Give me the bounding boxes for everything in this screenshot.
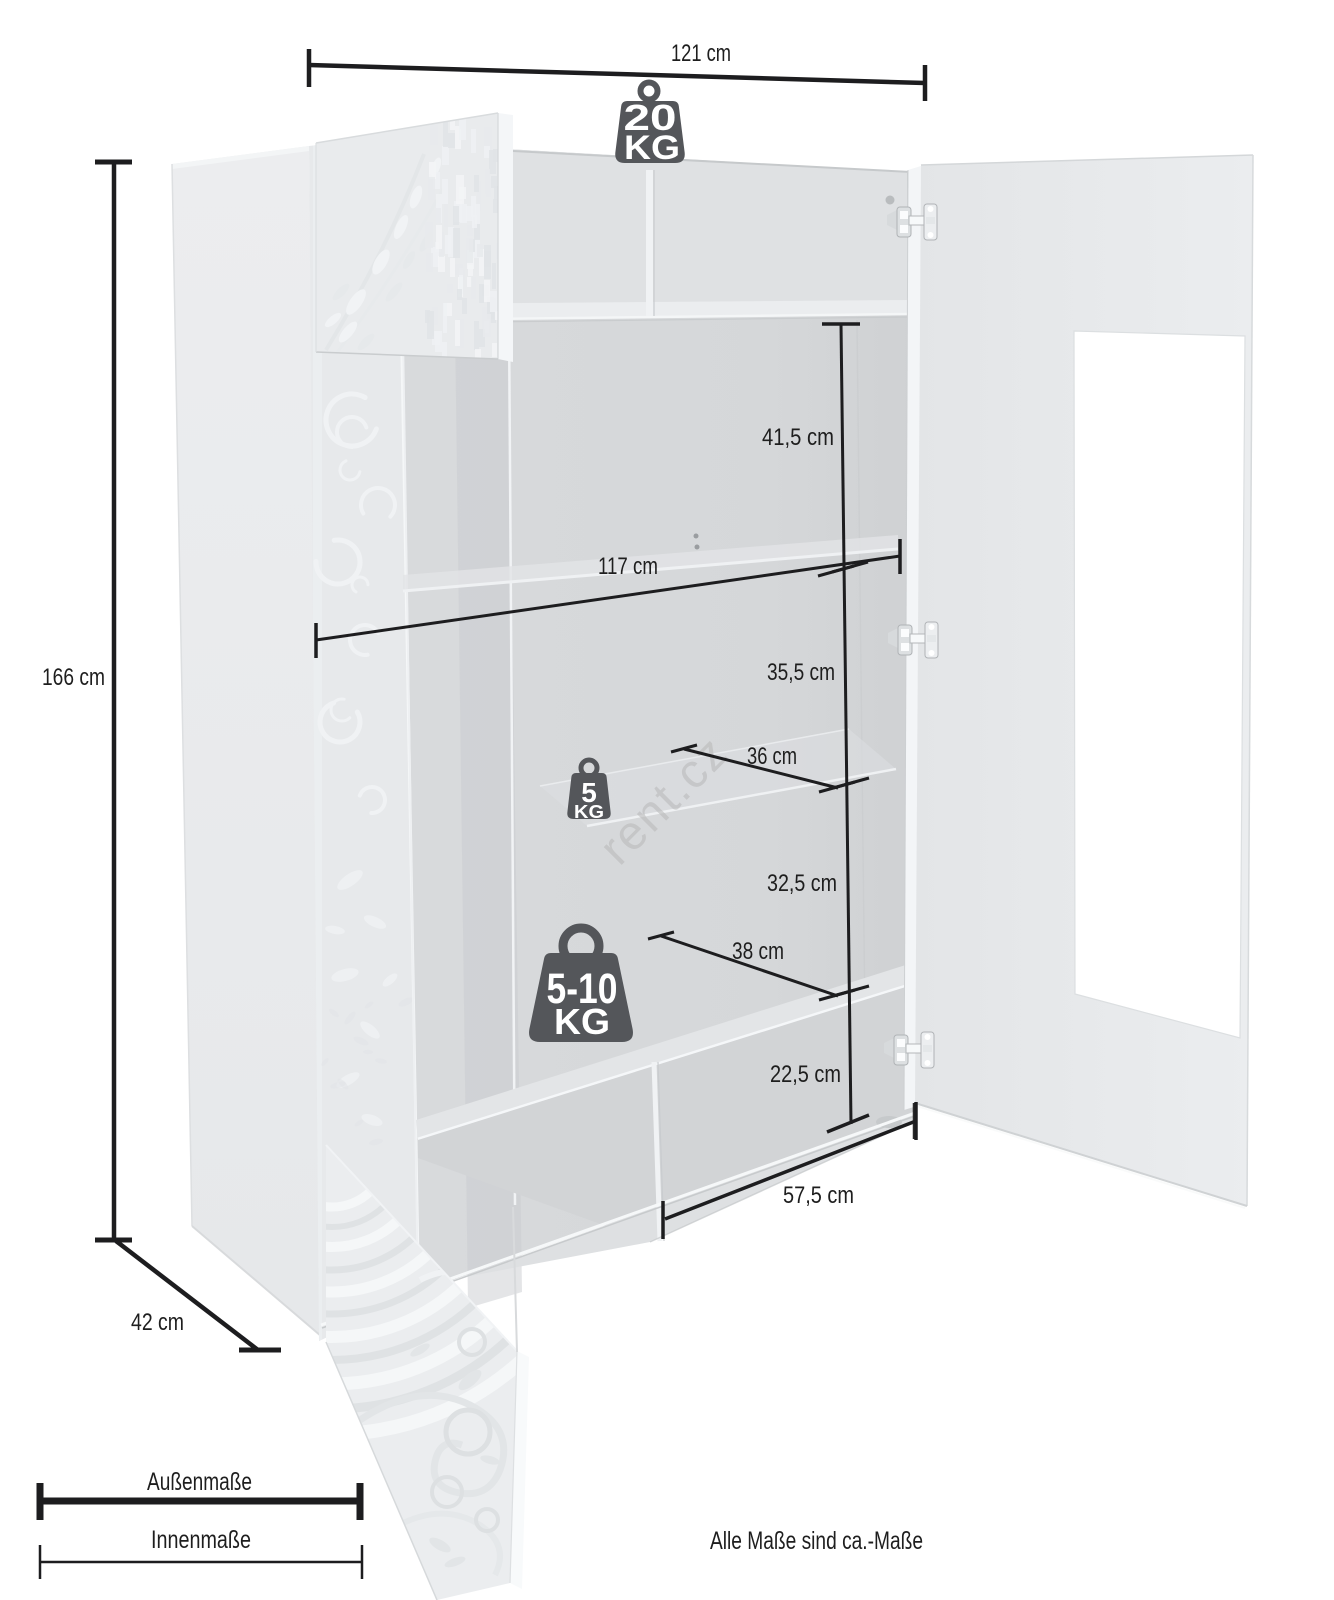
svg-text:Außenmaße: Außenmaße <box>147 1468 252 1496</box>
svg-text:Innenmaße: Innenmaße <box>151 1526 251 1554</box>
svg-text:166 cm: 166 cm <box>42 664 105 691</box>
svg-text:35,5 cm: 35,5 cm <box>767 659 835 686</box>
svg-text:121 cm: 121 cm <box>671 40 731 67</box>
svg-text:KG: KG <box>574 802 604 822</box>
svg-text:57,5 cm: 57,5 cm <box>783 1182 854 1209</box>
svg-text:KG: KG <box>554 1001 610 1042</box>
svg-text:32,5 cm: 32,5 cm <box>767 870 837 897</box>
svg-text:41,5 cm: 41,5 cm <box>762 424 834 451</box>
svg-text:36 cm: 36 cm <box>747 743 797 770</box>
svg-text:KG: KG <box>624 129 680 167</box>
svg-text:42 cm: 42 cm <box>131 1309 184 1336</box>
svg-text:117 cm: 117 cm <box>598 553 658 580</box>
svg-text:22,5 cm: 22,5 cm <box>770 1061 841 1088</box>
svg-text:38 cm: 38 cm <box>732 938 784 965</box>
svg-text:Alle Maße sind ca.-Maße: Alle Maße sind ca.-Maße <box>710 1527 923 1555</box>
